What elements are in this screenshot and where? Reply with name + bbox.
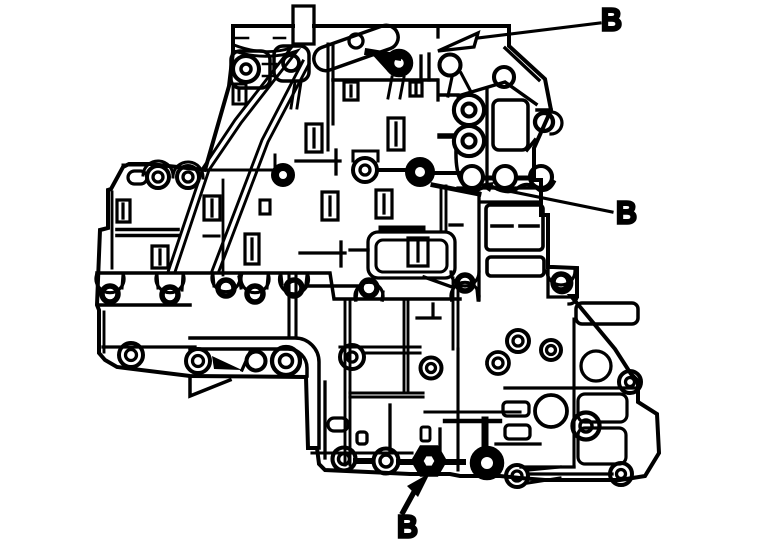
svg-text:B: B	[601, 2, 622, 37]
svg-text:B: B	[397, 509, 418, 544]
svg-text:B: B	[616, 195, 637, 230]
